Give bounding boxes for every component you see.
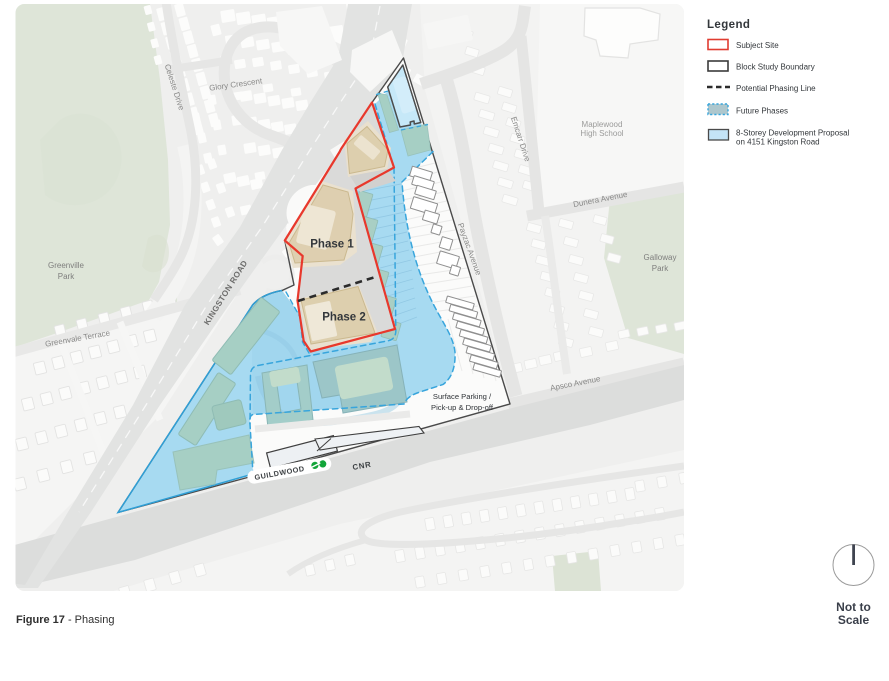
svg-text:High School: High School	[580, 129, 623, 138]
svg-text:Phase 2: Phase 2	[322, 312, 365, 324]
svg-text:Potential Phasing Line: Potential Phasing Line	[736, 84, 816, 93]
svg-text:Future Phases: Future Phases	[736, 107, 788, 116]
svg-text:Scale: Scale	[838, 613, 870, 627]
svg-text:Not to: Not to	[836, 600, 871, 614]
svg-text:Greenville: Greenville	[48, 261, 85, 270]
svg-text:Galloway: Galloway	[644, 253, 677, 262]
svg-text:Figure 17 - Phasing: Figure 17 - Phasing	[16, 614, 114, 626]
svg-text:Park: Park	[58, 272, 75, 281]
svg-text:Pick-up & Drop-off: Pick-up & Drop-off	[431, 403, 494, 412]
svg-text:8-Storey Development Proposal: 8-Storey Development Proposal	[736, 129, 850, 138]
svg-text:Surface Parking /: Surface Parking /	[433, 392, 492, 401]
svg-text:Phase 1: Phase 1	[310, 239, 354, 251]
svg-text:Maplewood: Maplewood	[582, 120, 623, 129]
svg-text:on 4151 Kingston Road: on 4151 Kingston Road	[736, 138, 820, 147]
svg-text:Legend: Legend	[707, 19, 750, 31]
svg-text:Park: Park	[652, 264, 669, 273]
svg-text:Subject Site: Subject Site	[736, 41, 779, 50]
svg-text:Block Study Boundary: Block Study Boundary	[736, 63, 815, 72]
